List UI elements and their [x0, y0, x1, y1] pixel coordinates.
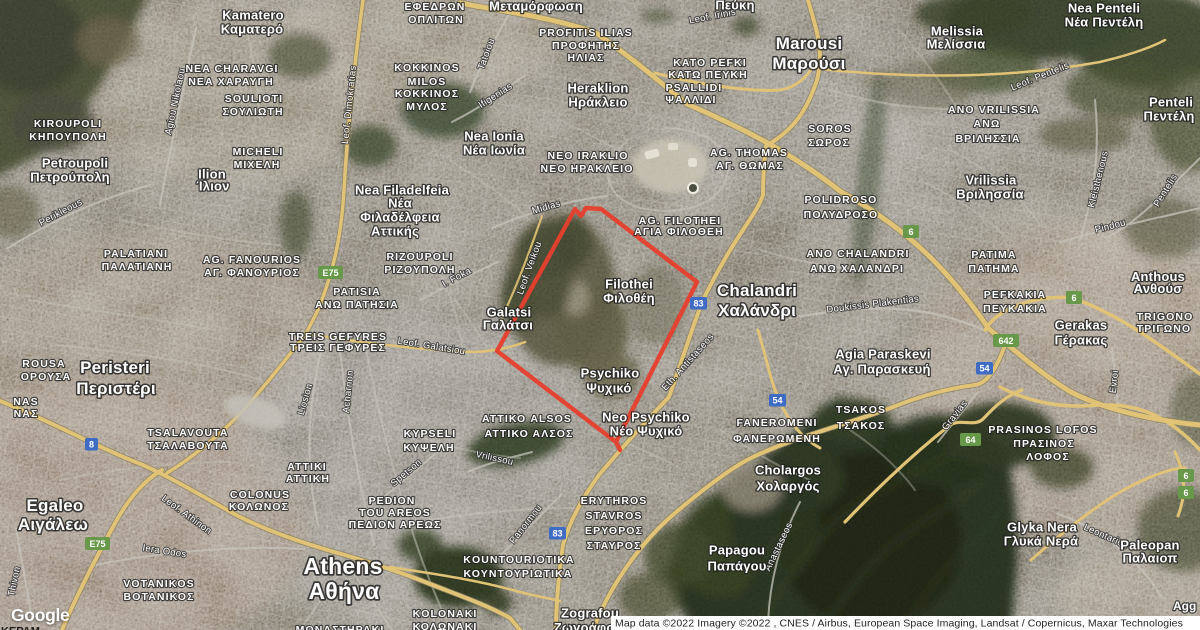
svg-text:Πετρούπολη: Πετρούπολη	[30, 170, 110, 185]
svg-text:ΝΕΑ ΧΑΡΑΥΓΗ: ΝΕΑ ΧΑΡΑΥΓΗ	[188, 76, 274, 88]
svg-text:NAS: NAS	[13, 396, 38, 408]
svg-text:TSAKOS: TSAKOS	[836, 404, 886, 416]
svg-text:6: 6	[1071, 293, 1076, 303]
svg-text:ΑΝΩ: ΑΝΩ	[974, 118, 1001, 130]
svg-text:ΠΡΟΦΗΤΗΣ: ΠΡΟΦΗΤΗΣ	[552, 40, 620, 52]
svg-text:Νέα Πεντέλη: Νέα Πεντέλη	[1065, 15, 1144, 30]
svg-text:PALATIANI: PALATIANI	[104, 248, 168, 260]
svg-text:Agia Paraskevi: Agia Paraskevi	[835, 347, 930, 362]
svg-text:Νέο Ψυχικό: Νέο Ψυχικό	[610, 424, 683, 439]
svg-text:Νέα Ιωνία: Νέα Ιωνία	[463, 143, 525, 158]
svg-text:Map data ©2022 Imagery ©2022 ,: Map data ©2022 Imagery ©2022 , CNES / Ai…	[615, 618, 1183, 630]
svg-text:ΜΟΝΑΣΤΗΡΑΚΙ: ΜΟΝΑΣΤΗΡΑΚΙ	[296, 624, 385, 630]
svg-text:Athens: Athens	[303, 553, 382, 579]
svg-text:COLONUS: COLONUS	[230, 489, 290, 501]
svg-text:Χαλάνδρι: Χαλάνδρι	[718, 301, 796, 320]
svg-text:ΑΤΤΙΚΙ: ΑΤΤΙΚΙ	[287, 461, 327, 473]
svg-text:KOKKINOS: KOKKINOS	[394, 62, 459, 74]
svg-text:Παπάγου: Παπάγου	[707, 559, 766, 574]
svg-text:ΠΑΛΑΤΙΑΝΗ: ΠΑΛΑΤΙΑΝΗ	[102, 261, 173, 273]
svg-text:Google: Google	[11, 605, 70, 625]
svg-text:Νέα: Νέα	[388, 196, 412, 211]
svg-text:Χολαργός: Χολαργός	[756, 479, 819, 494]
svg-text:ANO CHALANDRI: ANO CHALANDRI	[807, 248, 910, 260]
svg-text:ΑΤΤΙΚΟ ΑΛΣΟΣ: ΑΤΤΙΚΟ ΑΛΣΟΣ	[485, 428, 574, 440]
svg-text:Cholargos: Cholargos	[755, 463, 821, 478]
svg-text:Psychiko: Psychiko	[581, 366, 640, 381]
svg-text:Γλυκά Νερά: Γλυκά Νερά	[1004, 534, 1078, 549]
svg-text:ROUSA: ROUSA	[22, 358, 65, 370]
svg-text:64: 64	[965, 435, 975, 445]
svg-text:ΑΓ. ΦΑΝΟΥΡΙΟΣ: ΑΓ. ΦΑΝΟΥΡΙΟΣ	[204, 267, 300, 279]
svg-text:Καματερό: Καματερό	[221, 22, 284, 37]
svg-text:ΚΗΠΟΥΠΟΛΗ: ΚΗΠΟΥΠΟΛΗ	[29, 131, 107, 143]
svg-text:TOU AREOS: TOU AREOS	[359, 507, 431, 519]
svg-text:PSALLIDI: PSALLIDI	[666, 82, 723, 94]
svg-text:Glyka Nera: Glyka Nera	[1007, 520, 1078, 535]
svg-text:ΗΛΙΑΣ: ΗΛΙΑΣ	[568, 52, 605, 64]
svg-text:6: 6	[1183, 471, 1188, 481]
svg-text:KOUNTOURIOTIKA: KOUNTOURIOTIKA	[463, 554, 574, 566]
svg-text:Zografou: Zografou	[561, 606, 619, 621]
svg-text:Nea Ionia: Nea Ionia	[464, 129, 524, 144]
svg-text:8: 8	[89, 440, 94, 450]
svg-text:ΝΑΣ: ΝΑΣ	[14, 408, 39, 420]
svg-text:ANO VRILISSIA: ANO VRILISSIA	[948, 104, 1040, 116]
svg-text:Μελίσσια: Μελίσσια	[927, 37, 986, 52]
svg-text:Περιστέρι: Περιστέρι	[76, 379, 156, 398]
svg-text:Chalandri: Chalandri	[717, 281, 797, 300]
svg-text:Filothei: Filothei	[605, 277, 653, 292]
svg-text:ΑΤΤΙΚΟ ALSOS: ΑΤΤΙΚΟ ALSOS	[482, 413, 572, 425]
svg-text:ΚΕΡΑΜ: ΚΕΡΑΜ	[1, 626, 40, 630]
svg-text:PEDION: PEDION	[369, 495, 416, 507]
svg-text:FANEROMENI: FANEROMENI	[736, 417, 817, 429]
svg-text:ΑΓΙΑ ΦΙΛΟΘΕΗ: ΑΓΙΑ ΦΙΛΟΘΕΗ	[634, 226, 724, 238]
svg-text:NEO IRAKLIO: NEO IRAKLIO	[548, 150, 629, 162]
svg-text:MILOS: MILOS	[408, 76, 447, 88]
svg-text:ΕΦΕΔΡΩΝ: ΕΦΕΔΡΩΝ	[405, 1, 466, 13]
svg-text:ΡΙΖΟΥΠΟΛΗ: ΡΙΖΟΥΠΟΛΗ	[384, 264, 455, 276]
svg-text:ΜΙΧΕΛΗ: ΜΙΧΕΛΗ	[234, 159, 281, 171]
svg-text:54: 54	[772, 396, 782, 406]
svg-text:Αθήνα: Αθήνα	[308, 578, 379, 604]
svg-text:Heraklion: Heraklion	[567, 81, 628, 96]
svg-text:ΚΟΥΝΤΟΥΡΙΩΤΙΚΑ: ΚΟΥΝΤΟΥΡΙΩΤΙΚΑ	[464, 568, 573, 580]
svg-text:Παλαιοπ: Παλαιοπ	[1123, 551, 1178, 566]
svg-text:Μεταμόρφωση: Μεταμόρφωση	[489, 0, 583, 14]
svg-text:PEFKAKIA: PEFKAKIA	[984, 289, 1046, 301]
svg-text:Γέρακας: Γέρακας	[1055, 333, 1108, 348]
svg-text:VOTANIKOS: VOTANIKOS	[123, 578, 195, 590]
svg-text:ΠΟΛΥΔΡΟΣΟ: ΠΟΛΥΔΡΟΣΟ	[804, 209, 879, 221]
svg-text:Πεντέλη: Πεντέλη	[1143, 109, 1194, 124]
svg-text:Nea Penteli: Nea Penteli	[1068, 1, 1140, 16]
svg-text:TSALAVOUTA: TSALAVOUTA	[147, 427, 228, 439]
svg-text:KIROUPOLI: KIROUPOLI	[34, 118, 102, 130]
svg-text:642: 642	[998, 336, 1013, 346]
svg-text:KYPSELI: KYPSELI	[404, 428, 457, 440]
svg-text:ΒΡΙΛΗΣΣΙΑ: ΒΡΙΛΗΣΣΙΑ	[955, 133, 1020, 145]
svg-text:ΤΣΑΚΟΣ: ΤΣΑΚΟΣ	[837, 420, 885, 432]
svg-text:ΜΥΛΟΣ: ΜΥΛΟΣ	[406, 101, 448, 113]
svg-text:E75: E75	[89, 539, 105, 549]
svg-text:Μαρούσι: Μαρούσι	[772, 54, 845, 73]
svg-text:ΑΓ. ΘΩΜΑΣ: ΑΓ. ΘΩΜΑΣ	[716, 160, 784, 172]
svg-text:ERYTHROS: ERYTHROS	[581, 495, 648, 507]
svg-text:ΕΡΥΘΡΟΣ: ΕΡΥΘΡΟΣ	[585, 525, 643, 537]
svg-text:ΣΩΡΟΣ: ΣΩΡΟΣ	[808, 137, 850, 149]
svg-text:ΨΑΛΛΙΔΙ: ΨΑΛΛΙΔΙ	[665, 94, 716, 106]
svg-text:PRASINOS LOFOS: PRASINOS LOFOS	[988, 424, 1097, 436]
svg-text:83: 83	[693, 299, 703, 309]
svg-text:ΚΟΛΩΝΑΚΙ: ΚΟΛΩΝΑΚΙ	[413, 621, 478, 630]
svg-text:SOULIOTI: SOULIOTI	[225, 93, 283, 105]
svg-text:PROFITIS ILIAS: PROFITIS ILIAS	[539, 27, 633, 39]
svg-text:AG. FANOURIOS: AG. FANOURIOS	[203, 254, 301, 266]
svg-text:ΛΟΦΟΣ: ΛΟΦΟΣ	[1026, 451, 1069, 463]
svg-text:Ανθούσ: Ανθούσ	[1134, 281, 1183, 296]
svg-text:Petroupoli: Petroupoli	[42, 156, 108, 171]
svg-text:ΠΡΑΣΙΝΟΣ: ΠΡΑΣΙΝΟΣ	[1013, 438, 1074, 450]
svg-text:ΚΟΚΚΙΝΟΣ: ΚΟΚΚΙΝΟΣ	[395, 88, 459, 100]
svg-text:ΡΑΤΙΜΑ: ΡΑΤΙΜΑ	[971, 249, 1016, 261]
svg-text:ΦΑΝΕΡΩΜΕΝΗ: ΦΑΝΕΡΩΜΕΝΗ	[733, 433, 821, 445]
svg-text:ΑΝΩ ΧΑΛΑΝΔΡΙ: ΑΝΩ ΧΑΛΑΝΔΡΙ	[810, 263, 904, 275]
svg-text:Neo Psychiko: Neo Psychiko	[602, 410, 690, 425]
svg-text:Αιγάλεω: Αιγάλεω	[18, 515, 88, 534]
svg-text:TRIGONO: TRIGONO	[1137, 311, 1194, 323]
svg-text:ΠΕΔΙΟΝ ΑΡΕΩΣ: ΠΕΔΙΟΝ ΑΡΕΩΣ	[349, 519, 442, 531]
svg-text:Vrilissia: Vrilissia	[966, 173, 1018, 188]
svg-text:MICHELI: MICHELI	[233, 146, 284, 158]
svg-text:Αττικής: Αττικής	[371, 224, 419, 239]
svg-text:Marousi: Marousi	[776, 34, 843, 53]
svg-text:Egaleo: Egaleo	[27, 496, 84, 515]
svg-text:Ηράκλειο: Ηράκλειο	[568, 95, 627, 110]
svg-text:Kamatero: Kamatero	[222, 8, 284, 23]
svg-text:ΑΤΤΙΚΗ: ΑΤΤΙΚΗ	[286, 473, 330, 485]
svg-text:RIZOUPOLI: RIZOUPOLI	[386, 251, 453, 263]
svg-text:ΣΟΥΛΙΩΤΗ: ΣΟΥΛΙΩΤΗ	[222, 106, 283, 118]
svg-text:Γαλάτσι: Γαλάτσι	[483, 318, 533, 333]
svg-text:Φιλαδέλφεια: Φιλαδέλφεια	[360, 210, 439, 225]
svg-text:ΒΟΤΑΝΙΚΟΣ: ΒΟΤΑΝΙΚΟΣ	[124, 591, 195, 603]
svg-text:POLIDROSO: POLIDROSO	[805, 194, 878, 206]
svg-text:ΟΡΟΥΣΑ: ΟΡΟΥΣΑ	[21, 371, 72, 383]
svg-text:SOROS: SOROS	[808, 123, 851, 135]
svg-text:Ψυχικό: Ψυχικό	[586, 381, 631, 396]
svg-text:83: 83	[552, 529, 562, 539]
svg-text:STAVROS: STAVROS	[586, 510, 643, 522]
svg-text:ΚΑΤΟ PEFKI: ΚΑΤΟ PEFKI	[673, 57, 747, 69]
svg-text:Πεύκη: Πεύκη	[715, 0, 754, 13]
svg-text:Agg: Agg	[1173, 599, 1196, 613]
svg-text:Peristeri: Peristeri	[80, 358, 150, 377]
svg-text:Gerakas: Gerakas	[1055, 318, 1108, 333]
svg-text:Penteli: Penteli	[1149, 95, 1193, 110]
svg-text:ΚΑΤΩ ΠΕΥΚΗ: ΚΑΤΩ ΠΕΥΚΗ	[668, 69, 748, 81]
svg-text:ΠΑΤΗΜΑ: ΠΑΤΗΜΑ	[968, 263, 1019, 275]
svg-text:ΚΥΨΕΛΗ: ΚΥΨΕΛΗ	[403, 442, 454, 454]
svg-text:ΑΝΩ ΠΑΤΗΣΙΑ: ΑΝΩ ΠΑΤΗΣΙΑ	[315, 299, 399, 311]
svg-text:ΚΟΛΩΝΟΣ: ΚΟΛΩΝΟΣ	[229, 501, 289, 513]
svg-text:ΤΡΙΓΩΝΟ: ΤΡΙΓΩΝΟ	[1137, 323, 1192, 335]
svg-text:6: 6	[908, 227, 913, 237]
svg-text:Papagou: Papagou	[709, 543, 765, 558]
svg-text:ΤΡΕΙΣ ΓΕΦΥΡΕΣ: ΤΡΕΙΣ ΓΕΦΥΡΕΣ	[290, 342, 386, 354]
svg-text:Φιλοθέη: Φιλοθέη	[603, 291, 655, 306]
svg-text:ΣΤΑΥΡΟΣ: ΣΤΑΥΡΟΣ	[587, 540, 642, 552]
svg-text:54: 54	[979, 364, 989, 374]
svg-text:KOLONAKI: KOLONAKI	[413, 608, 478, 620]
svg-text:AG. THOMAS: AG. THOMAS	[710, 147, 788, 159]
svg-text:ΠΕΥΚΑΚΙΑ: ΠΕΥΚΑΚΙΑ	[983, 303, 1047, 315]
svg-text:PATISIA: PATISIA	[333, 286, 381, 298]
svg-text:Βριλησσία: Βριλησσία	[956, 187, 1023, 202]
svg-text:6: 6	[1183, 488, 1188, 498]
svg-text:Ίλιον: Ίλιον	[196, 179, 229, 194]
svg-text:Αγ. Παρασκευή: Αγ. Παρασκευή	[833, 362, 930, 377]
svg-text:ΤΣΑΛΑΒΟΥΤΑ: ΤΣΑΛΑΒΟΥΤΑ	[147, 440, 229, 452]
svg-text:NEA CHARAVGI: NEA CHARAVGI	[185, 63, 278, 75]
svg-text:E75: E75	[322, 268, 338, 278]
svg-text:ΝΕΟ ΗΡΑΚΛΕΙΟ: ΝΕΟ ΗΡΑΚΛΕΙΟ	[541, 163, 634, 175]
svg-text:ΟΠΛΙΤΩΝ: ΟΠΛΙΤΩΝ	[408, 14, 464, 26]
